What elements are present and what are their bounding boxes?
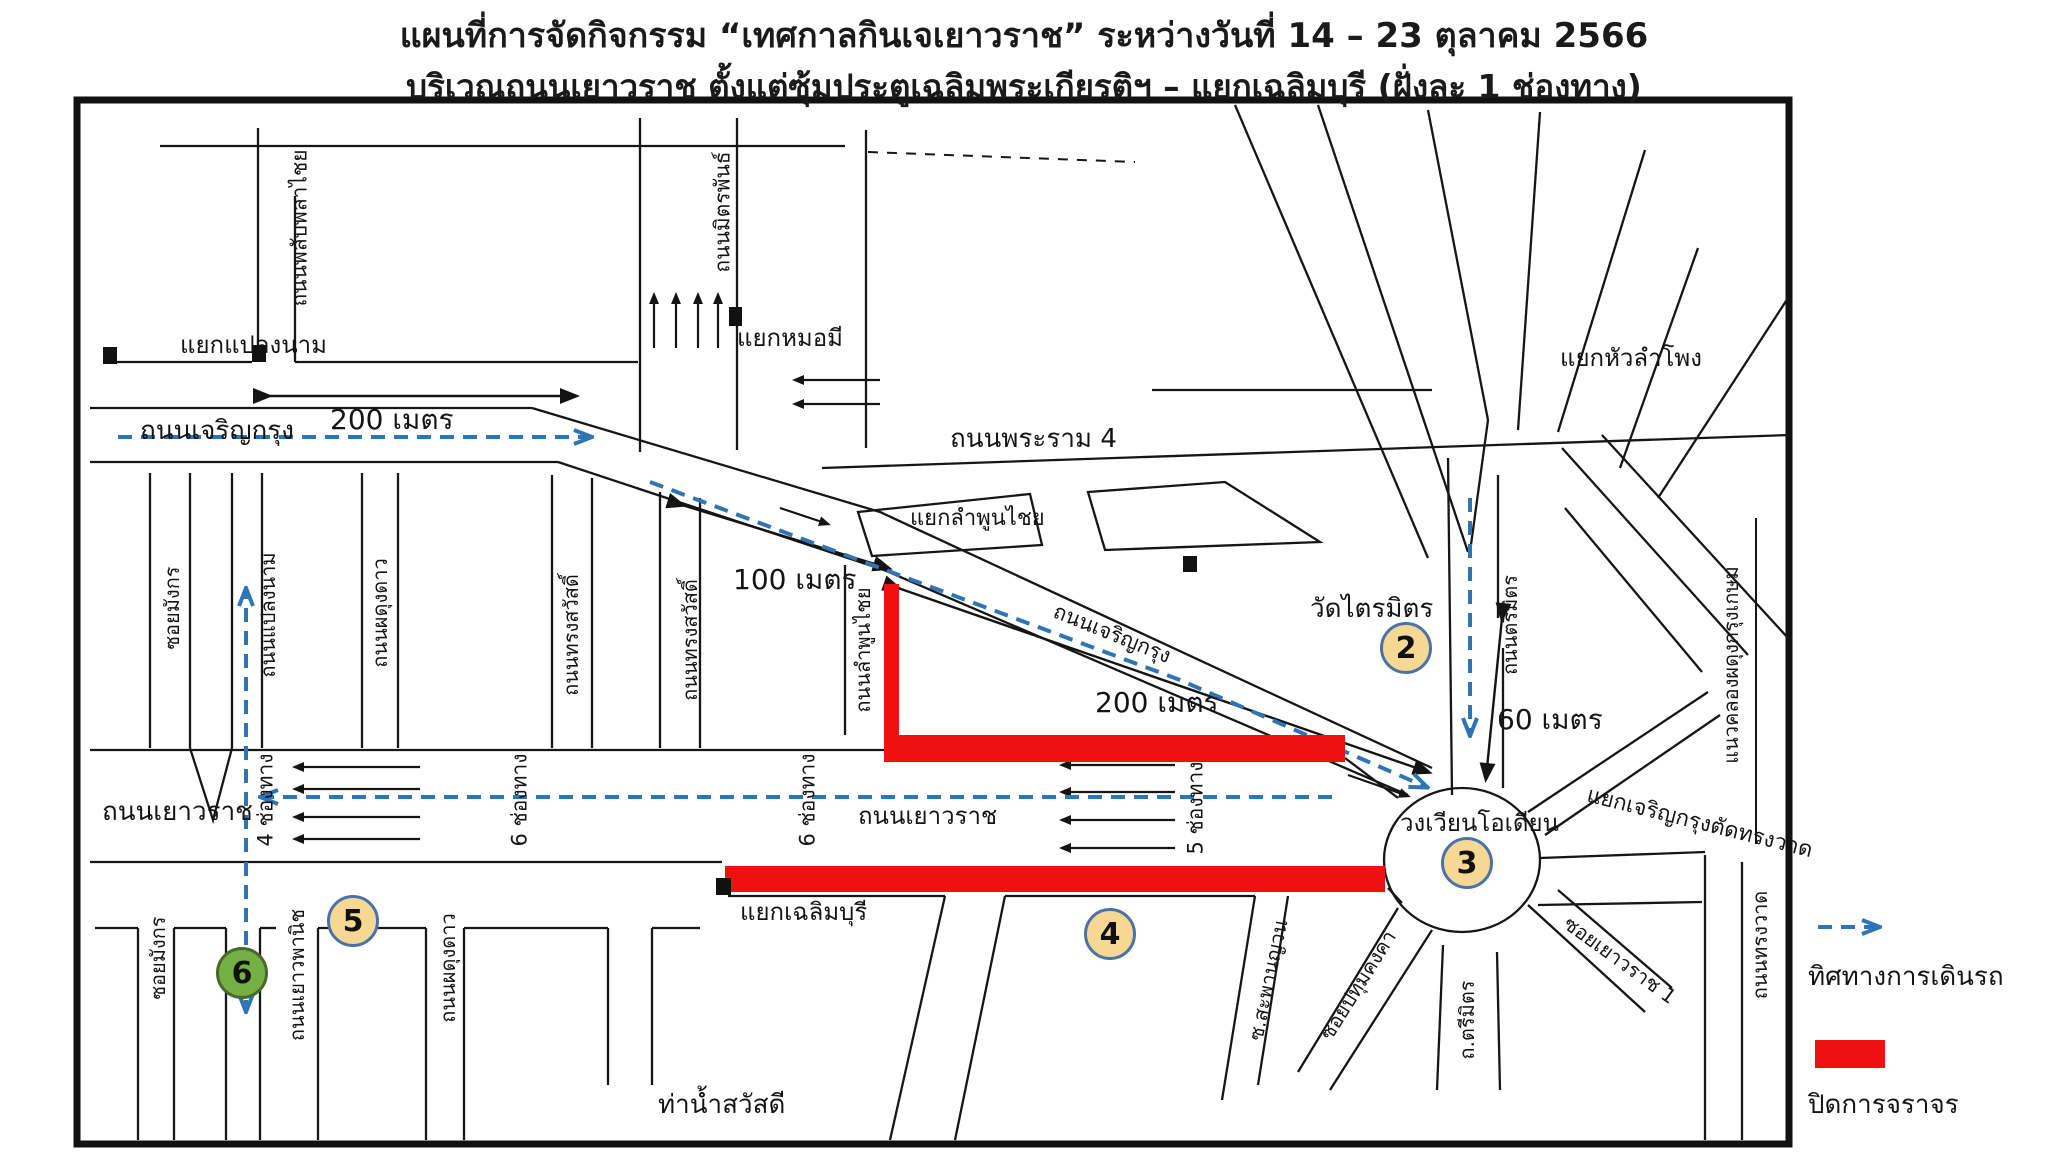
marker-6: 6 bbox=[216, 947, 268, 999]
label-rama4: ถนนพระราม 4 bbox=[950, 418, 1117, 459]
label-mit-phan: ถนนมิตรพันธ์ bbox=[707, 151, 740, 272]
label-plaeng-nam-road: ถนนแปลงนาม bbox=[252, 552, 284, 677]
marker-3: 3 bbox=[1441, 837, 1493, 889]
label-phadung-dao-south: ถนนผดุงดาว bbox=[432, 913, 464, 1022]
label-phadung-dao-north: ถนนผดุงดาว bbox=[364, 558, 396, 667]
label-yaek-hua-lamphong: แยกหัวลำโพง bbox=[1560, 338, 1702, 377]
marker-2: 2 bbox=[1380, 622, 1432, 674]
label-yaek-lamphun-chai: แยกลำพูนไชย bbox=[910, 500, 1045, 535]
label-lane-4: 4 ช่องทาง bbox=[250, 753, 283, 846]
label-charoen-krung-west: ถนนเจริญกรุง bbox=[140, 410, 294, 451]
label-lane-6a: 6 ช่องทาง bbox=[504, 753, 537, 846]
label-lane-5: 5 ช่องทาง bbox=[1180, 761, 1213, 854]
label-song-wat: ถนนทรงวาด bbox=[1744, 891, 1776, 1000]
festival-traffic-map: แผนที่การจัดกิจกรรม “เทศกาลกินเจเยาวราช”… bbox=[0, 0, 2048, 1152]
marker-5: 5 bbox=[327, 895, 379, 947]
label-tha-nam-sawatdi: ท่าน้ำสวัสดี bbox=[658, 1084, 785, 1125]
label-200m-east: 200 เมตร bbox=[1095, 681, 1219, 725]
label-yaek-chalermburi: แยกเฉลิมบุรี bbox=[740, 892, 867, 931]
map-title-line1: แผนที่การจัดกิจกรรม “เทศกาลกินเจเยาวราช”… bbox=[0, 8, 2048, 62]
label-khlong-kasem: แนวคลองผดุงกรุงเกษม bbox=[1715, 566, 1747, 764]
label-lane-6b: 6 ช่องทาง bbox=[792, 753, 825, 846]
label-trimit-short: ถ.ตรีมิตร bbox=[1451, 980, 1483, 1059]
label-lamphun-chai-road: ถนนลำพูนไชย bbox=[847, 587, 879, 712]
closure-yaowarat-north bbox=[884, 735, 1345, 762]
label-60m: 60 เมตร bbox=[1497, 698, 1603, 742]
label-phlapphla-chai: ถนนพลับพลาไชย bbox=[284, 149, 317, 306]
legend-closed-label: ปิดการจราจร bbox=[1808, 1084, 1959, 1125]
map-title-line2: บริเวณถนนเยาวราช ตั้งแต่ซุ้มประตูเฉลิมพร… bbox=[0, 60, 2048, 113]
marker-4: 4 bbox=[1084, 908, 1136, 960]
map-border bbox=[77, 100, 1789, 1144]
legend-direction-label: ทิศทางการเดินรถ bbox=[1808, 956, 2004, 997]
label-odeon-circle: วงเวียนโอเดียน bbox=[1400, 803, 1559, 842]
label-yaek-plaeng-nam: แยกแปลงนาม bbox=[180, 325, 327, 364]
label-soi-mangkon-north: ซอยมังกร bbox=[156, 566, 188, 649]
label-yaowa-phanit: ถนนเยาวพานิช bbox=[281, 909, 313, 1041]
label-song-sawat-2: ถนนทรงสวัสดิ์ bbox=[674, 579, 706, 701]
label-100m: 100 เมตร bbox=[733, 558, 857, 602]
label-trimit-road: ถนนตรีมิตร bbox=[1494, 575, 1526, 675]
label-yaowarat-mid: ถนนเยาวราช bbox=[858, 796, 997, 835]
legend-closed-swatch bbox=[1815, 1040, 1885, 1068]
label-soi-mangkon-south: ซอยมังกร bbox=[142, 916, 174, 999]
label-song-sawat-1: ถนนทรงสวัสดิ์ bbox=[555, 574, 587, 696]
closure-yaowarat-south bbox=[725, 866, 1385, 892]
label-yaowarat-west: ถนนเยาวราช bbox=[102, 791, 253, 832]
label-yaek-mo-mi: แยกหมอมี bbox=[737, 318, 843, 357]
label-200m-west: 200 เมตร bbox=[330, 398, 454, 442]
